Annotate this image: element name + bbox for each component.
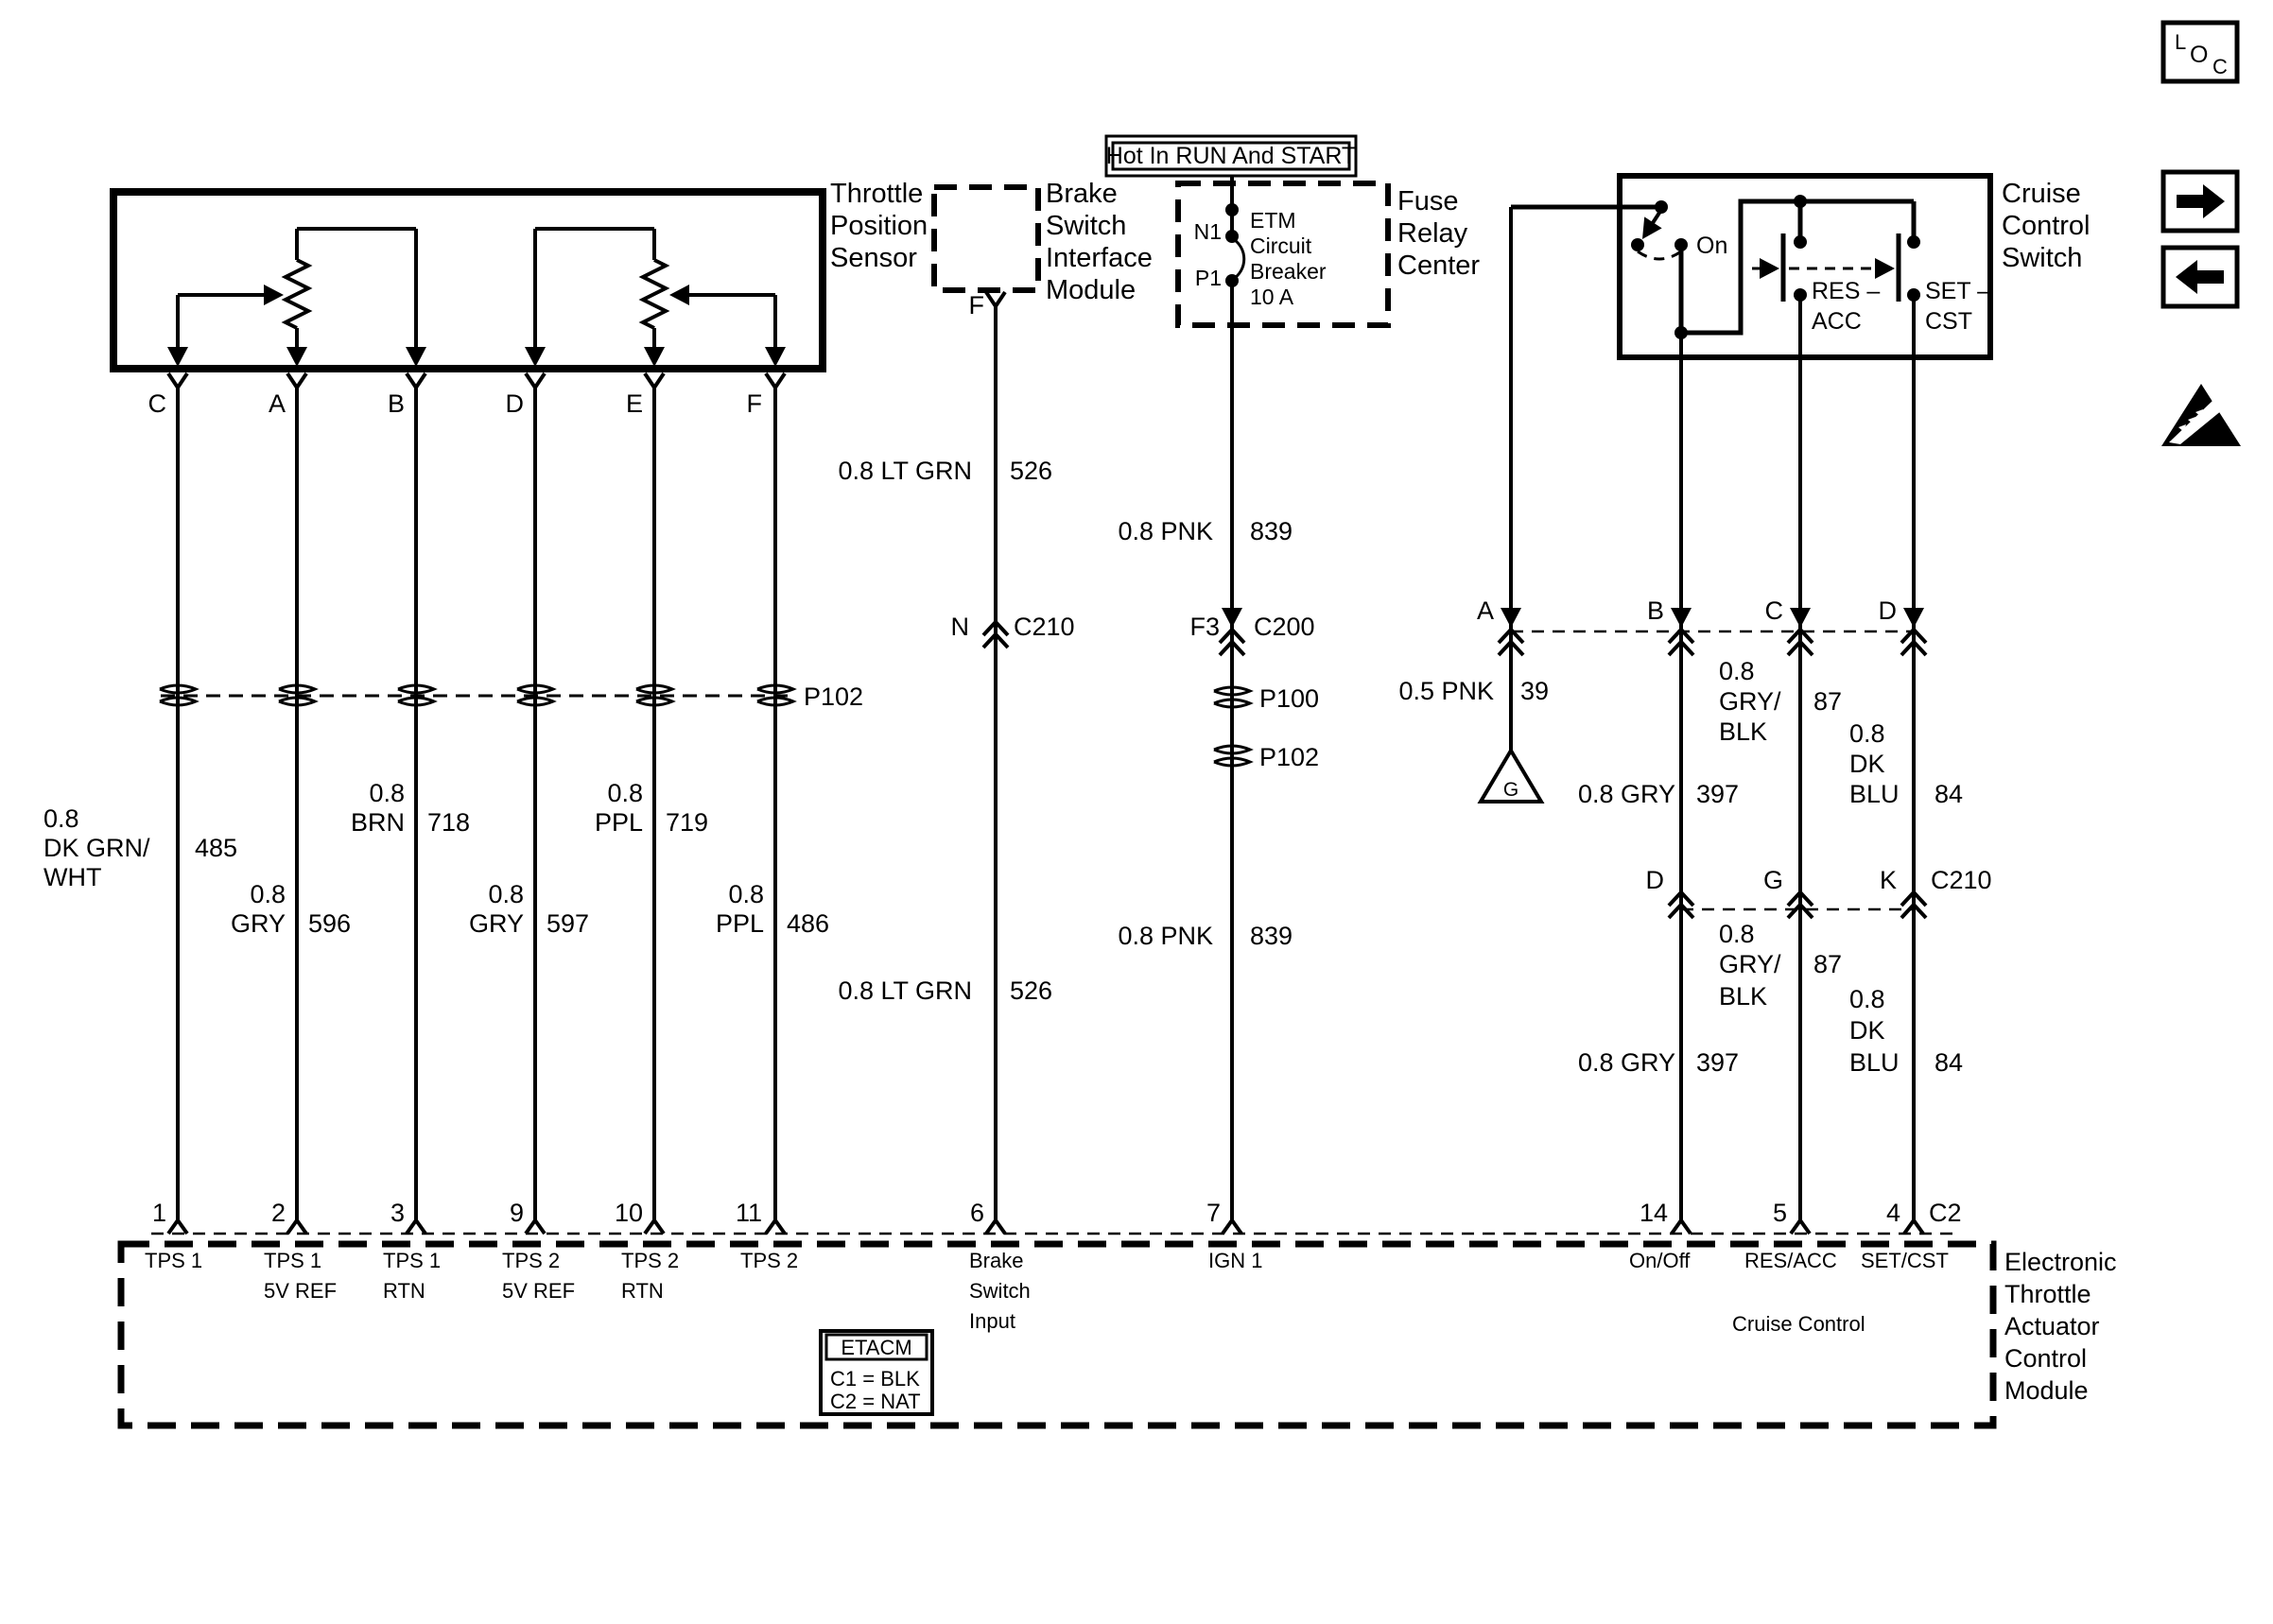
row1-pin-b: B: [1647, 596, 1664, 625]
loc-letter-l: L: [2175, 30, 2186, 54]
etacm-legend-title: ETACM: [841, 1336, 911, 1359]
brake-module-box: [934, 187, 1038, 290]
c210-pin-n: N: [951, 613, 970, 641]
pin-11: 11: [736, 1199, 762, 1227]
wire-526-color-lower: 0.8 LT GRN: [838, 976, 972, 1005]
throttle-position-sensor: Throttle Position Sensor: [113, 179, 928, 369]
wire-839-color-upper: 0.8 PNK: [1118, 517, 1213, 545]
on-label: On: [1696, 233, 1727, 259]
row1-pin-a: A: [1477, 596, 1494, 625]
tps2-potentiometer-icon: [525, 229, 786, 367]
pin-10: 10: [615, 1199, 643, 1227]
pin-7: 7: [1206, 1199, 1221, 1227]
wire-839-circuit-lower: 839: [1250, 922, 1293, 950]
pin-10-label-2: RTN: [621, 1279, 664, 1303]
etm-circuit-breaker-icon: [1225, 176, 1244, 287]
wire-84-l3: BLU: [1849, 1048, 1900, 1077]
fuse-relay-center: Fuse Relay Center N1 P1 ETM Circuit Brea…: [1178, 176, 1480, 325]
wire-397-color-l: 0.8 GRY: [1578, 1048, 1675, 1077]
tps-pin-row: C A B D E F: [148, 373, 786, 418]
etacm-name-5: Module: [2004, 1376, 2089, 1405]
pin-5: 5: [1773, 1199, 1787, 1227]
wire-87-u1: 0.8: [1719, 657, 1755, 685]
wire-397-color-u: 0.8 GRY: [1578, 780, 1675, 808]
tps-label-line3: Sensor: [830, 243, 917, 273]
p102-grommet-row: P102: [160, 682, 863, 711]
brake-module-pin-f: F: [969, 291, 985, 320]
wire-718-color-1: 0.8: [369, 779, 405, 807]
pin-11-label: TPS 2: [740, 1249, 798, 1272]
pin-1-label: TPS 1: [145, 1249, 202, 1272]
ground-letter: G: [1503, 779, 1518, 801]
etacm-name-2: Throttle: [2004, 1280, 2091, 1308]
brake-module-label-4: Module: [1046, 275, 1136, 305]
tps1-potentiometer-icon: [167, 229, 426, 367]
wire-397-circuit-u: 397: [1696, 780, 1739, 808]
etacm-legend-c2: C2 = NAT: [830, 1390, 921, 1413]
set-cst-label-2: CST: [1925, 308, 1972, 335]
fuse-label-1: Fuse: [1397, 186, 1458, 216]
c210-name: C210: [1014, 613, 1075, 641]
wire-485-color-1: 0.8: [43, 804, 79, 833]
pin-6: 6: [970, 1199, 984, 1227]
pin-2-label-2: 5V REF: [264, 1279, 337, 1303]
etacm-name-3: Actuator: [2004, 1312, 2100, 1340]
wire-839-circuit-upper: 839: [1250, 517, 1293, 545]
etacm-legend: ETACM C1 = BLK C2 = NAT: [821, 1331, 932, 1414]
etacm-legend-c1: C1 = BLK: [830, 1367, 920, 1391]
wiring-diagram-page: L O C: [0, 0, 2273, 1624]
cruise-wire-labels-upper: 0.8 GRY/ BLK 87 0.8 DK BLU 84 0.8 GRY 39…: [1578, 657, 1963, 808]
loc-icon: L O C: [2163, 23, 2237, 81]
tps-box: [113, 192, 823, 369]
tps-wires: [178, 388, 775, 1220]
tps-wire-labels: 0.8 DK GRN/ WHT 485 0.8 GRY 596 0.8 BRN …: [43, 779, 829, 938]
row2-name-c210: C210: [1931, 866, 1992, 894]
breaker-desc-4: 10 A: [1250, 285, 1294, 309]
loc-letter-o: O: [2190, 42, 2208, 68]
pin-10-label-1: TPS 2: [621, 1249, 679, 1272]
forward-arrow-icon[interactable]: [2163, 172, 2237, 231]
tps-label-line2: Position: [830, 211, 928, 241]
pin-7-label: IGN 1: [1208, 1249, 1262, 1272]
row1-pin-c: C: [1765, 596, 1784, 625]
wire-719-circuit: 719: [666, 808, 708, 837]
res-acc-label-2: ACC: [1812, 308, 1862, 335]
p102-row-label: P102: [804, 682, 863, 711]
wire-719-color-2: PPL: [595, 808, 643, 837]
wire-486-color-1: 0.8: [728, 880, 764, 908]
tps-pin-c: C: [148, 389, 167, 418]
cruise-control-section-label: Cruise Control: [1732, 1312, 1865, 1336]
fuse-label-3: Center: [1397, 251, 1480, 281]
wire-84-circuit-l: 84: [1935, 1048, 1963, 1077]
wire-87-l3: BLK: [1719, 982, 1767, 1011]
pin-3-label-1: TPS 1: [383, 1249, 441, 1272]
connector-row-2: D G K C210: [1646, 866, 1992, 918]
row2-pin-g: G: [1763, 866, 1783, 894]
wire-718-circuit: 718: [427, 808, 470, 837]
row1-pin-d: D: [1879, 596, 1898, 625]
hot-in-run-start-banner: Hot In RUN And START: [1106, 136, 1356, 176]
wire-84-u2: DK: [1849, 750, 1885, 778]
pin-6-label-2: Switch: [969, 1279, 1031, 1303]
pin-1: 1: [152, 1199, 166, 1227]
pin-2: 2: [271, 1199, 286, 1227]
tps-pin-e: E: [626, 389, 643, 418]
breaker-pin-p1: P1: [1195, 266, 1222, 290]
wire-486-circuit: 486: [787, 909, 829, 938]
wire-596-color-1: 0.8: [250, 880, 286, 908]
wire-719-color-1: 0.8: [607, 779, 643, 807]
wire-597-circuit: 597: [547, 909, 589, 938]
connector-c2: C2: [1929, 1199, 1962, 1227]
pin-6-label-1: Brake: [969, 1249, 1023, 1272]
wire-84-l1: 0.8: [1849, 985, 1885, 1013]
pin-9: 9: [510, 1199, 524, 1227]
wire-39-color: 0.5 PNK: [1398, 677, 1494, 705]
wire-526-circuit-lower: 526: [1010, 976, 1052, 1005]
wire-87-circuit-u: 87: [1813, 687, 1842, 716]
wire-397-circuit-l: 397: [1696, 1048, 1739, 1077]
row2-pin-k: K: [1880, 866, 1897, 894]
pin-6-label-3: Input: [969, 1309, 1015, 1333]
breaker-desc-2: Circuit: [1250, 233, 1312, 258]
ground-branch: 0.5 PNK 39 G: [1398, 677, 1549, 802]
etacm-name-1: Electronic: [2004, 1248, 2117, 1276]
wire-87-u2: GRY/: [1719, 687, 1781, 716]
wire-485-circuit: 485: [195, 834, 237, 862]
wire-526-color-upper: 0.8 LT GRN: [838, 457, 972, 485]
loc-letter-c: C: [2212, 55, 2228, 78]
cruise-wire-labels-lower: 0.8 GRY/ BLK 87 0.8 DK BLU 84 0.8 GRY 39…: [1578, 920, 1963, 1077]
wire-839-color-lower: 0.8 PNK: [1118, 922, 1213, 950]
cruise-label-1: Cruise: [2002, 179, 2081, 209]
brake-module-label-2: Switch: [1046, 211, 1126, 241]
etacm-name-4: Control: [2004, 1344, 2087, 1373]
fuse-label-2: Relay: [1397, 218, 1468, 249]
res-acc-label-1: RES –: [1812, 278, 1880, 304]
pin-14: 14: [1640, 1199, 1668, 1227]
pin-3-label-2: RTN: [383, 1279, 425, 1303]
set-cst-label-1: SET –: [1925, 278, 1990, 304]
pin-3: 3: [390, 1199, 405, 1227]
wire-526-circuit-upper: 526: [1010, 457, 1052, 485]
brake-module-label-3: Interface: [1046, 243, 1153, 273]
wire-87-l1: 0.8: [1719, 920, 1755, 948]
wire-84-circuit-u: 84: [1935, 780, 1963, 808]
tps-pin-d: D: [506, 389, 525, 418]
breaker-desc-1: ETM: [1250, 208, 1296, 233]
wire-87-circuit-l: 87: [1813, 950, 1842, 978]
p100-label: P100: [1259, 684, 1319, 713]
tps-label-line1: Throttle: [830, 179, 923, 209]
pin-14-label: On/Off: [1629, 1249, 1691, 1272]
tps-pin-a: A: [269, 389, 286, 418]
brake-switch-interface-module: Brake Switch Interface Module F: [934, 179, 1153, 320]
tps-pin-f: F: [747, 389, 763, 418]
wire-596-circuit: 596: [308, 909, 351, 938]
pin-4: 4: [1886, 1199, 1900, 1227]
wire-485-color-3: WHT: [43, 863, 101, 891]
ground-icon: G: [1481, 751, 1541, 802]
wire-597-color-1: 0.8: [488, 880, 524, 908]
c200-pin-f3: F3: [1189, 613, 1220, 641]
wire-87-u3: BLK: [1719, 717, 1767, 746]
wiring-diagram: L O C: [0, 0, 2273, 1624]
wire-485-color-2: DK GRN/: [43, 834, 150, 862]
hot-banner-text: Hot In RUN And START: [1106, 143, 1356, 169]
wire-84-l2: DK: [1849, 1016, 1885, 1045]
esd-warning-icon: [2161, 384, 2241, 446]
etacm-module: 1 2 3 9 10 11 6 7 14 5 4 C2 TPS 1 TPS 1 …: [121, 1199, 2117, 1425]
cruise-label-2: Control: [2002, 211, 2091, 241]
pin-2-label-1: TPS 1: [264, 1249, 321, 1272]
pin-4-label: SET/CST: [1861, 1249, 1949, 1272]
c200-name: C200: [1254, 613, 1315, 641]
breaker-desc-3: Breaker: [1250, 259, 1327, 284]
tps-pin-b: B: [388, 389, 405, 418]
ignition-wire: 0.8 PNK 839 F3 C200 P100 P102 0.8 PNK 83…: [1118, 281, 1319, 1220]
wire-84-u1: 0.8: [1849, 719, 1885, 748]
wire-486-color-2: PPL: [716, 909, 764, 938]
brake-module-label-1: Brake: [1046, 179, 1118, 209]
brake-switch-wire: 0.8 LT GRN 526 N C210 0.8 LT GRN 526: [838, 306, 1074, 1220]
breaker-pin-n1: N1: [1194, 219, 1222, 244]
pin-9-label-2: 5V REF: [502, 1279, 575, 1303]
cruise-label-3: Switch: [2002, 243, 2082, 273]
row2-pin-d: D: [1646, 866, 1665, 894]
pin-9-label-1: TPS 2: [502, 1249, 560, 1272]
p102-mid-label: P102: [1259, 743, 1319, 771]
wire-597-color-2: GRY: [469, 909, 524, 938]
wire-596-color-2: GRY: [231, 909, 286, 938]
connector-row-1: A B C D: [1477, 596, 1926, 655]
wire-87-l2: GRY/: [1719, 950, 1781, 978]
back-arrow-icon[interactable]: [2163, 248, 2237, 306]
wire-84-u3: BLU: [1849, 780, 1900, 808]
pin-5-label: RES/ACC: [1744, 1249, 1837, 1272]
wire-718-color-2: BRN: [351, 808, 405, 837]
wire-39-circuit: 39: [1520, 677, 1549, 705]
